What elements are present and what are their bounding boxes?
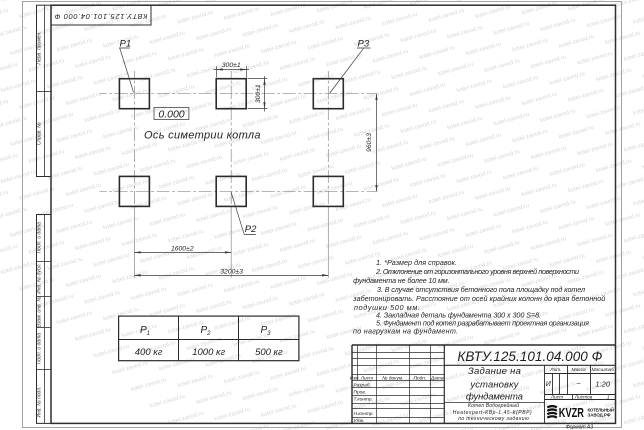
svg-text:Лист: Лист <box>550 395 563 401</box>
svg-text:Масштаб: Масштаб <box>591 367 614 373</box>
svg-text:–: – <box>576 380 581 387</box>
svg-text:Утв.: Утв. <box>354 418 365 424</box>
svg-text:№ докум.: № докум. <box>382 376 403 382</box>
svg-text:Инв. № дубл.: Инв. № дубл. <box>37 263 43 294</box>
svg-text:300±1: 300±1 <box>222 62 241 69</box>
svg-text:Формат А3: Формат А3 <box>566 424 594 430</box>
svg-text:Задание на: Задание на <box>468 366 521 377</box>
svg-text:Дата: Дата <box>430 376 444 382</box>
svg-text:Изм.: Изм. <box>350 376 360 382</box>
svg-text:960±3: 960±3 <box>366 133 373 152</box>
svg-text:1. *Размер для справок.: 1. *Размер для справок. <box>376 258 457 267</box>
svg-text:КВТУ.125.101.04.000 Ф: КВТУ.125.101.04.000 Ф <box>54 12 147 21</box>
svg-text:Heatexpert-КВр-1,45-К(РВР): Heatexpert-КВр-1,45-К(РВР) <box>453 410 532 416</box>
svg-text:Взам. инв. №: Взам. инв. № <box>37 296 43 328</box>
svg-text:фундамента: фундамента <box>466 392 523 403</box>
svg-text:1:20: 1:20 <box>595 380 610 389</box>
svg-text:1: 1 <box>607 395 610 401</box>
svg-text:Листов: Листов <box>574 395 593 401</box>
svg-text:Ось симетрии котла: Ось симетрии котла <box>144 129 261 141</box>
svg-text:3200±3: 3200±3 <box>220 269 243 276</box>
svg-text:по нагрузкам на фундамент.: по нагрузкам на фундамент. <box>353 326 458 335</box>
svg-text:Котел Водогрейный: Котел Водогрейный <box>468 402 519 409</box>
svg-text:Перв. примен.: Перв. примен. <box>37 31 43 64</box>
svg-text:Пров.: Пров. <box>354 390 367 396</box>
svg-text:Р2: Р2 <box>245 224 257 235</box>
svg-text:400 кг: 400 кг <box>135 347 163 358</box>
svg-text:ЗАВОД.РФ: ЗАВОД.РФ <box>588 412 611 417</box>
svg-text:500 кг: 500 кг <box>255 347 283 358</box>
svg-text:Подп. и дата: Подп. и дата <box>37 222 43 254</box>
svg-text:КВТУ.125.101.04.000 Ф: КВТУ.125.101.04.000 Ф <box>457 349 602 364</box>
svg-text:Справ. №: Справ. № <box>37 122 43 145</box>
svg-text:300±1: 300±1 <box>255 84 262 103</box>
svg-text:Лит.: Лит. <box>549 367 561 373</box>
svg-text:Подп. и дата: Подп. и дата <box>37 333 43 365</box>
svg-text:установку: установку <box>469 379 519 390</box>
svg-text:KVZR: KVZR <box>559 407 584 421</box>
svg-text:Лист: Лист <box>360 376 373 382</box>
svg-text:Масса: Масса <box>572 367 587 373</box>
svg-text:по техническому заданию: по техническому заданию <box>458 416 529 422</box>
svg-text:фундамента не более 10 мм.: фундамента не более 10 мм. <box>353 276 450 285</box>
svg-text:Инв. № подл.: Инв. № подл. <box>37 386 43 417</box>
svg-text:забетонировать. Расстояние от: забетонировать. Расстояние от осей крайн… <box>352 294 605 303</box>
svg-text:Разраб.: Разраб. <box>354 382 371 388</box>
svg-text:Т.контр.: Т.контр. <box>354 397 373 403</box>
svg-text:2. Отклонение от горизонтальн: 2. Отклонение от горизонтального уровня … <box>375 267 579 276</box>
svg-text:0.000: 0.000 <box>158 109 184 121</box>
svg-text:1600±2: 1600±2 <box>171 246 194 253</box>
svg-text:3. В случае отсутствия бетонн: 3. В случае отсутствия бетонного пола пл… <box>377 285 585 294</box>
svg-text:Н.контр.: Н.контр. <box>354 411 374 417</box>
svg-text:1000 кг: 1000 кг <box>192 347 225 358</box>
svg-text:Подп.: Подп. <box>414 376 427 382</box>
